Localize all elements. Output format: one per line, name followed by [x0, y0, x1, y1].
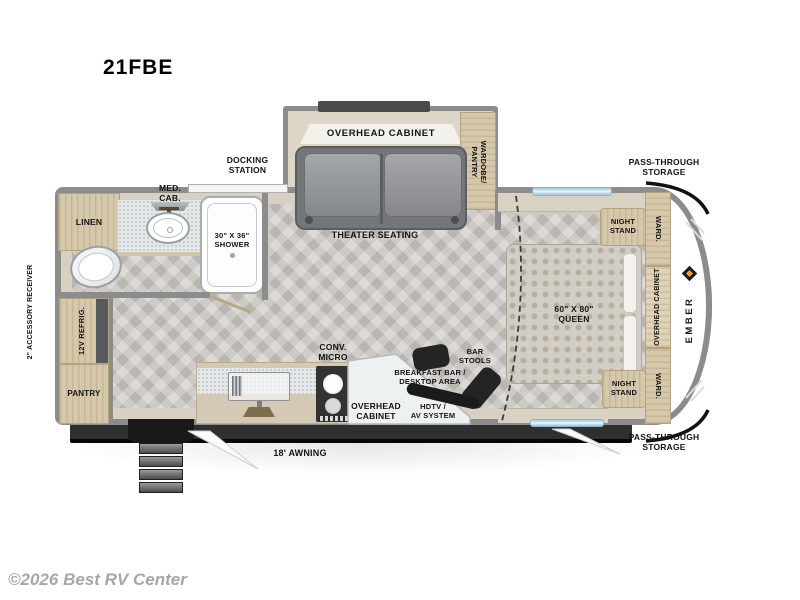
- shower-inner-rim: 30" X 36" SHOWER: [207, 203, 257, 287]
- sofa-center-seam: [380, 154, 383, 224]
- page-title: 21FBE: [103, 56, 173, 80]
- slide-awning-bar: [318, 101, 430, 112]
- theater-seating-label: THEATER SEATING: [312, 230, 438, 241]
- range-vent: [318, 416, 348, 421]
- wardrobe-bottom-label: WARD.: [652, 356, 664, 416]
- bedroom-window-bottom: [530, 419, 604, 427]
- burner-rear: [325, 398, 341, 414]
- step-rung: [139, 469, 183, 480]
- pantry-cabinet: PANTRY: [59, 364, 109, 424]
- pantry-label: PANTRY: [67, 389, 100, 398]
- shower-drain-icon: [230, 253, 235, 258]
- theater-sofa: [295, 146, 467, 230]
- hdtv-label: HDTV / AV SYSTEM: [402, 403, 464, 421]
- entry-steps: [139, 443, 183, 489]
- step-rung: [139, 443, 183, 454]
- night-stand-top-label: NIGHT STAND: [610, 218, 636, 236]
- bed-pillow-bottom: [623, 315, 637, 375]
- queen-bed: 60" X 80" QUEEN: [506, 244, 642, 384]
- sink-drain: [167, 227, 173, 233]
- bedroom-window-top: [532, 187, 612, 196]
- linen-cabinet: LINEN: [58, 193, 120, 251]
- sofa-footrest-bolt-right: [451, 216, 459, 224]
- ember-logo-accent: [686, 270, 693, 277]
- awning-label: 18' AWNING: [255, 448, 345, 459]
- step-rung: [139, 456, 183, 467]
- wardrobe-top-label: WARD.: [652, 199, 664, 259]
- shower-right-wall: [262, 190, 268, 300]
- conv-micro-label: CONV. MICRO: [308, 342, 358, 362]
- docking-station-panel: [188, 184, 288, 193]
- med-cab-label: MED. CAB.: [146, 183, 194, 203]
- bathroom-sink: [146, 212, 190, 244]
- night-stand-bottom: NIGHT STAND: [602, 370, 646, 408]
- toilet-lid: [75, 250, 116, 285]
- sofa-footrest-bolt-left: [305, 216, 313, 224]
- sofa-seat-left: [304, 153, 382, 217]
- linen-label: LINEN: [76, 217, 103, 227]
- shower-pan: 30" X 36" SHOWER: [200, 196, 264, 294]
- bed-pillow-top: [623, 253, 637, 313]
- tv-speaker-grille: [232, 376, 242, 396]
- cooktop-microwave-unit: [316, 366, 350, 422]
- kitchen-tv: [228, 372, 290, 401]
- wardrobe-pantry-label: WARDOBE/ PANTRY: [467, 117, 489, 207]
- overhead-cabinet-slide: OVERHEAD CABINET: [300, 124, 462, 144]
- accessory-receiver-label: 2" ACCESSORY RECEIVER: [25, 252, 37, 372]
- docking-station-label: DOCKING STATION: [200, 155, 295, 175]
- floorplan-page: 21FBE ©2026 Best RV Center OVERHEAD CABI…: [0, 0, 800, 600]
- copyright-watermark: ©2026 Best RV Center: [8, 570, 187, 590]
- ember-logo-text: EMBER: [684, 285, 696, 355]
- shower-label: 30" X 36" SHOWER: [215, 232, 250, 250]
- sofa-seat-right: [384, 153, 462, 217]
- bathroom-wall-stub: [196, 292, 210, 298]
- tv-stand-neck: [257, 401, 262, 408]
- refrigerator-label: 12V REFRIG.: [76, 296, 88, 366]
- queen-bed-label: 60" X 80" QUEEN: [554, 304, 593, 324]
- overhead-cabinet-bedroom-label: OVERHEAD CABINET: [652, 267, 664, 347]
- pass-through-top-label: PASS-THROUGH STORAGE: [618, 157, 710, 177]
- night-stand-bottom-label: NIGHT STAND: [611, 380, 637, 398]
- breakfast-bar-label: BREAKFAST BAR / DESKTOP AREA: [390, 369, 470, 387]
- night-stand-top: NIGHT STAND: [600, 208, 646, 246]
- entry-step-housing: [128, 419, 194, 443]
- pass-through-bottom-label: PASS-THROUGH STORAGE: [618, 432, 710, 452]
- overhead-cabinet-kitchen-label: OVERHEAD CABINET: [350, 401, 402, 421]
- refrigerator-door-edge: [96, 299, 108, 363]
- step-rung: [139, 482, 183, 493]
- burner-front: [323, 374, 343, 394]
- bar-stools-label: BAR STOOLS: [449, 348, 501, 366]
- overhead-cabinet-slide-label: OVERHEAD CABINET: [327, 128, 435, 139]
